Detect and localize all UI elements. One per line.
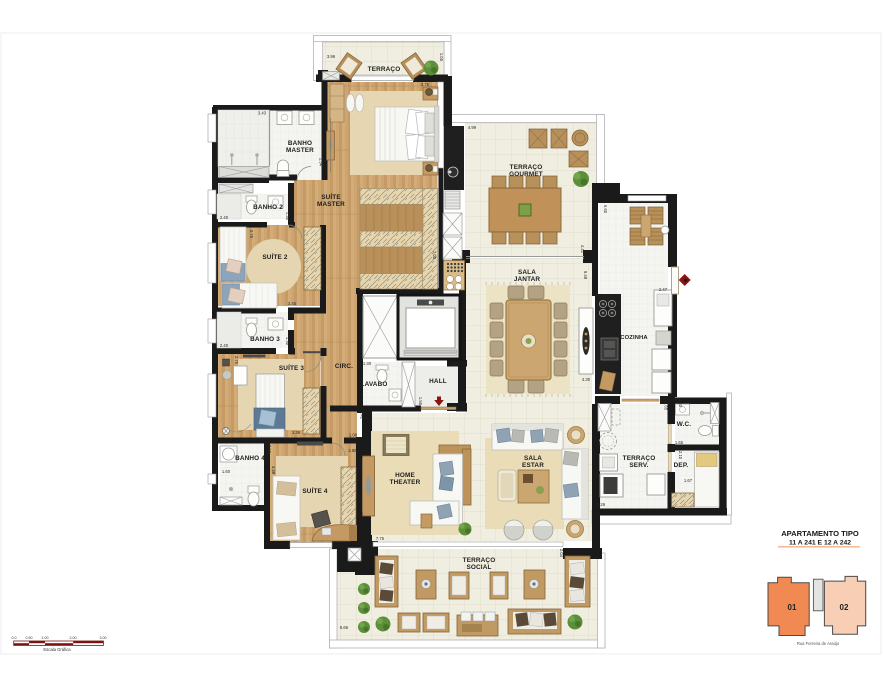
svg-text:2.26: 2.26: [597, 502, 606, 507]
svg-text:3.43: 3.43: [258, 111, 267, 116]
svg-text:DEP.: DEP.: [674, 462, 689, 469]
svg-text:02: 02: [840, 603, 849, 612]
svg-text:W.C.: W.C.: [677, 421, 692, 428]
svg-text:0.50: 0.50: [26, 636, 33, 640]
svg-text:JANTAR: JANTAR: [514, 276, 541, 283]
svg-text:1.00: 1.00: [42, 636, 49, 640]
svg-text:Rua Ferreira de Araújo: Rua Ferreira de Araújo: [797, 641, 840, 646]
svg-text:GOURMET: GOURMET: [509, 171, 543, 178]
svg-text:2.75: 2.75: [249, 230, 254, 239]
svg-text:2.88: 2.88: [348, 448, 357, 453]
svg-text:2.00: 2.00: [70, 636, 77, 640]
svg-text:2.47: 2.47: [659, 287, 668, 292]
svg-text:1.30: 1.30: [363, 361, 372, 366]
svg-text:SERV.: SERV.: [629, 462, 648, 469]
svg-text:1.30: 1.30: [285, 337, 290, 346]
svg-text:LAVABO: LAVABO: [361, 381, 388, 388]
svg-text:3.75: 3.75: [421, 82, 430, 87]
svg-text:SALA: SALA: [524, 455, 542, 462]
svg-text:BANHO 4: BANHO 4: [235, 455, 265, 462]
svg-text:9.48: 9.48: [583, 271, 588, 280]
svg-text:1.05: 1.05: [439, 53, 444, 62]
svg-text:1.40: 1.40: [678, 399, 683, 408]
svg-text:HOME: HOME: [395, 472, 415, 479]
svg-text:1.50: 1.50: [418, 397, 423, 406]
svg-text:6.60: 6.60: [603, 205, 608, 214]
svg-text:7.75: 7.75: [376, 536, 385, 541]
svg-text:TERRAÇO: TERRAÇO: [510, 164, 543, 171]
svg-text:2.75: 2.75: [234, 356, 239, 365]
svg-text:3.00: 3.00: [100, 636, 107, 640]
svg-text:2.10: 2.10: [678, 451, 683, 460]
svg-text:SUÍTE 3: SUÍTE 3: [279, 363, 304, 372]
svg-text:7.00: 7.00: [432, 251, 437, 260]
svg-text:BANHO 3: BANHO 3: [250, 336, 280, 343]
svg-text:4.30: 4.30: [582, 377, 591, 382]
svg-text:COZINHA: COZINHA: [620, 335, 648, 341]
svg-text:TERRAÇO: TERRAÇO: [368, 66, 401, 73]
svg-text:4.41: 4.41: [580, 245, 585, 254]
svg-text:THEATER: THEATER: [390, 479, 421, 486]
svg-text:2.40: 2.40: [220, 215, 229, 220]
svg-text:BANHO 2: BANHO 2: [253, 204, 283, 211]
svg-text:1.50: 1.50: [451, 361, 460, 366]
svg-text:BANHO: BANHO: [288, 140, 312, 147]
svg-text:11 A 241 E 12 A 242: 11 A 241 E 12 A 242: [789, 540, 851, 547]
svg-text:01: 01: [788, 603, 797, 612]
svg-text:TERRAÇO: TERRAÇO: [463, 557, 496, 564]
svg-text:1.60: 1.60: [222, 469, 231, 474]
svg-text:Escala Gráfica: Escala Gráfica: [43, 647, 71, 652]
svg-text:3.39: 3.39: [292, 430, 301, 435]
svg-text:3.45: 3.45: [288, 301, 297, 306]
svg-text:MASTER: MASTER: [286, 147, 314, 154]
svg-text:0.0: 0.0: [12, 636, 17, 640]
svg-text:MASTER: MASTER: [317, 201, 345, 208]
svg-text:3.96: 3.96: [327, 54, 336, 59]
svg-text:SUÍTE: SUÍTE: [321, 192, 341, 201]
svg-text:ESTAR: ESTAR: [522, 462, 544, 469]
svg-text:8.66: 8.66: [340, 625, 349, 630]
svg-text:HALL: HALL: [429, 378, 447, 385]
svg-text:4.42: 4.42: [360, 411, 365, 420]
svg-text:TERRAÇO: TERRAÇO: [623, 455, 656, 462]
svg-text:1.00: 1.00: [349, 433, 358, 438]
svg-text:2.10: 2.10: [267, 445, 272, 454]
svg-text:2.34: 2.34: [319, 158, 324, 167]
svg-text:SOCIAL: SOCIAL: [466, 564, 491, 571]
svg-text:4.99: 4.99: [468, 125, 477, 130]
svg-text:3.65: 3.65: [664, 402, 669, 411]
svg-text:SUÍTE 4: SUÍTE 4: [302, 486, 327, 495]
svg-text:1.30: 1.30: [285, 212, 290, 221]
svg-text:1.67: 1.67: [684, 478, 693, 483]
svg-text:2.40: 2.40: [220, 343, 229, 348]
svg-text:APARTAMENTO TIPO: APARTAMENTO TIPO: [781, 529, 859, 538]
svg-text:SUÍTE 2: SUÍTE 2: [262, 252, 287, 261]
svg-text:2.04: 2.04: [559, 549, 564, 558]
svg-text:3.38: 3.38: [271, 466, 276, 475]
svg-text:1.65: 1.65: [675, 440, 684, 445]
svg-text:SALA: SALA: [518, 269, 536, 276]
svg-text:CIRC.: CIRC.: [335, 363, 353, 370]
